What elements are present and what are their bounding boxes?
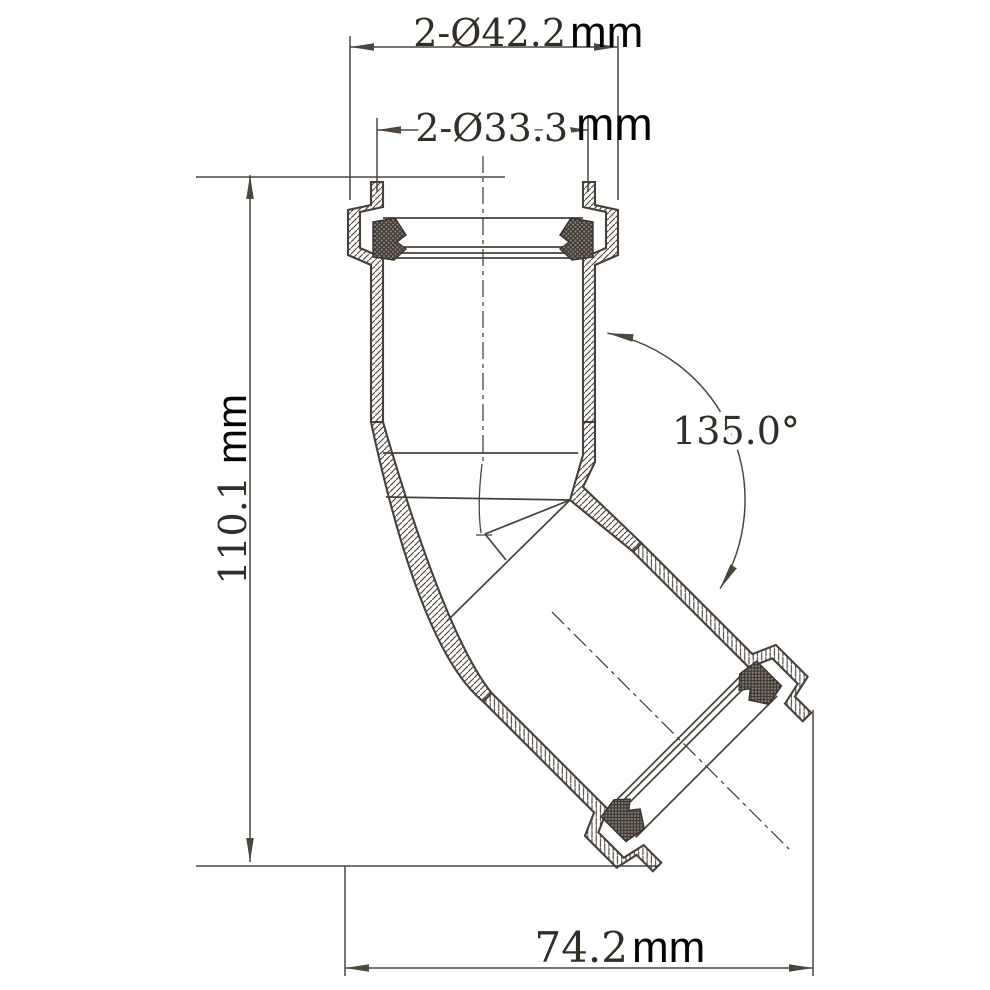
label-width-value: 74.2 <box>534 923 628 972</box>
dimension-labels: 2-Ø42.2 mm 2-Ø33.3 mm 110.1 mm 74.2 mm 1… <box>208 8 800 972</box>
technical-drawing-page: 2-Ø42.2 mm 2-Ø33.3 mm 110.1 mm 74.2 mm 1… <box>0 0 990 990</box>
dim-bend-angle <box>607 333 745 588</box>
label-bend-angle: 135.0° <box>672 409 800 453</box>
diagonal-centerline <box>552 612 789 849</box>
elbow-fitting-outline <box>348 156 827 887</box>
label-height-unit: mm <box>208 394 255 464</box>
label-outer-diameter-value: 2-Ø42.2 <box>413 11 566 55</box>
label-outer-diameter-unit: mm <box>570 8 643 57</box>
bend-wall-left <box>371 422 492 702</box>
label-mouth-diameter-unit: mm <box>576 98 653 150</box>
dimension-annotations <box>196 36 813 976</box>
bend-wall-right <box>570 422 642 552</box>
elbow-fitting-drawing: 2-Ø42.2 mm 2-Ø33.3 mm 110.1 mm 74.2 mm 1… <box>0 0 990 990</box>
label-height-value: 110.1 <box>211 476 255 585</box>
label-width-unit: mm <box>632 923 705 972</box>
label-mouth-diameter-value: 2-Ø33.3 <box>415 106 568 150</box>
